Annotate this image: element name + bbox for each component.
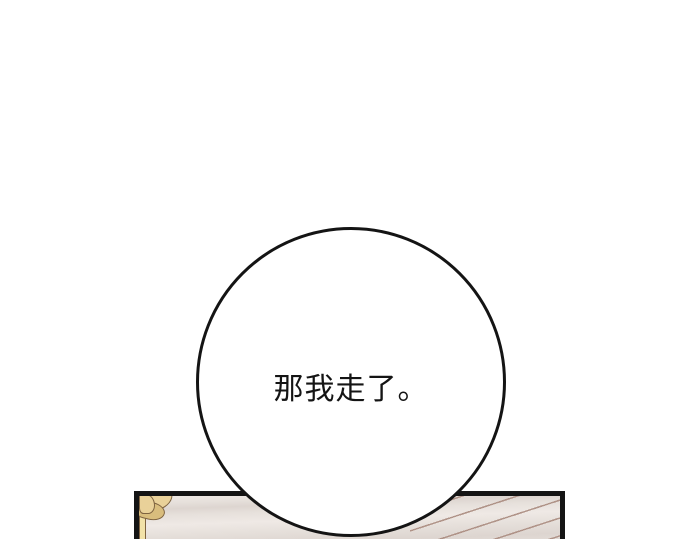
comic-page: 那我走了。: [0, 0, 690, 539]
gold-corner-ornament: [139, 496, 183, 526]
speech-bubble: 那我走了。: [196, 227, 506, 537]
speech-bubble-text: 那我走了。: [274, 364, 429, 408]
ornament-petal-icon: [139, 496, 155, 514]
